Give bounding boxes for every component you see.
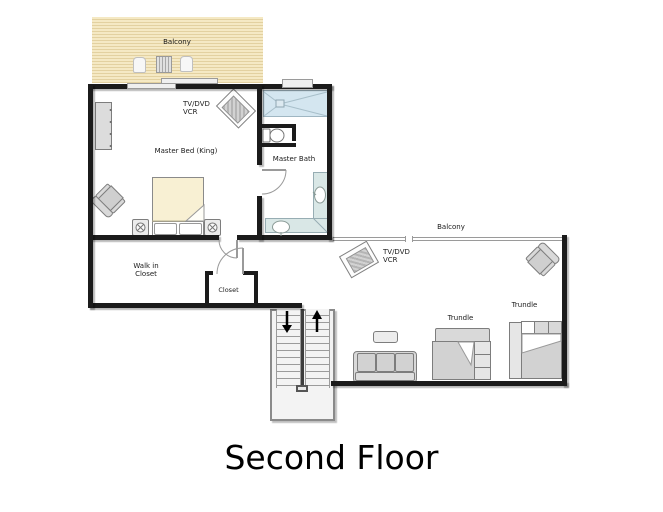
master-bedroom-label: Master Bed (King) — [136, 147, 236, 155]
stairs-down-arrow-icon — [282, 311, 292, 333]
trundle-fold — [458, 342, 474, 365]
tv1-label: TV/DVD VCR — [183, 100, 210, 116]
tv2-label-line1: TV/DVD — [383, 248, 410, 256]
balcony-top-label: Balcony — [147, 38, 207, 46]
trundle-left-label: Trundle — [430, 314, 491, 322]
door-arc — [217, 248, 243, 274]
bed-fold — [186, 205, 204, 221]
sink-icon — [315, 187, 326, 203]
stairs-up-arrow-icon — [312, 310, 322, 332]
walk-in-closet-line1: Walk in — [116, 262, 176, 270]
toilet-tank — [263, 129, 270, 142]
trundle-fold — [522, 334, 561, 353]
walk-in-closet-label: Walk in Closet — [116, 262, 176, 278]
page-title: Second Floor — [0, 438, 663, 477]
closet-label: Closet — [203, 286, 254, 294]
trundle-right-label: Trundle — [494, 301, 555, 309]
floor-plan: Balcony Balcony TV/DVD VCR Master Bed (K… — [0, 0, 663, 512]
plan-detail-overlay — [0, 0, 663, 512]
door-arc — [262, 170, 286, 194]
sink-icon — [273, 221, 290, 233]
shower-drain — [276, 100, 284, 107]
toilet-icon — [270, 129, 284, 142]
tv1-label-line1: TV/DVD — [183, 100, 210, 108]
walk-in-closet-line2: Closet — [116, 270, 176, 278]
lamp-icon — [136, 223, 217, 232]
vanity-corner — [313, 218, 327, 232]
tv2-label: TV/DVD VCR — [383, 248, 410, 264]
balcony-right-label: Balcony — [411, 223, 491, 231]
master-bath-label: Master Bath — [264, 155, 324, 163]
tv1-label-line2: VCR — [183, 108, 210, 116]
shower-lines — [264, 92, 327, 116]
tv2-label-line2: VCR — [383, 256, 410, 264]
dresser-handles — [110, 109, 112, 147]
